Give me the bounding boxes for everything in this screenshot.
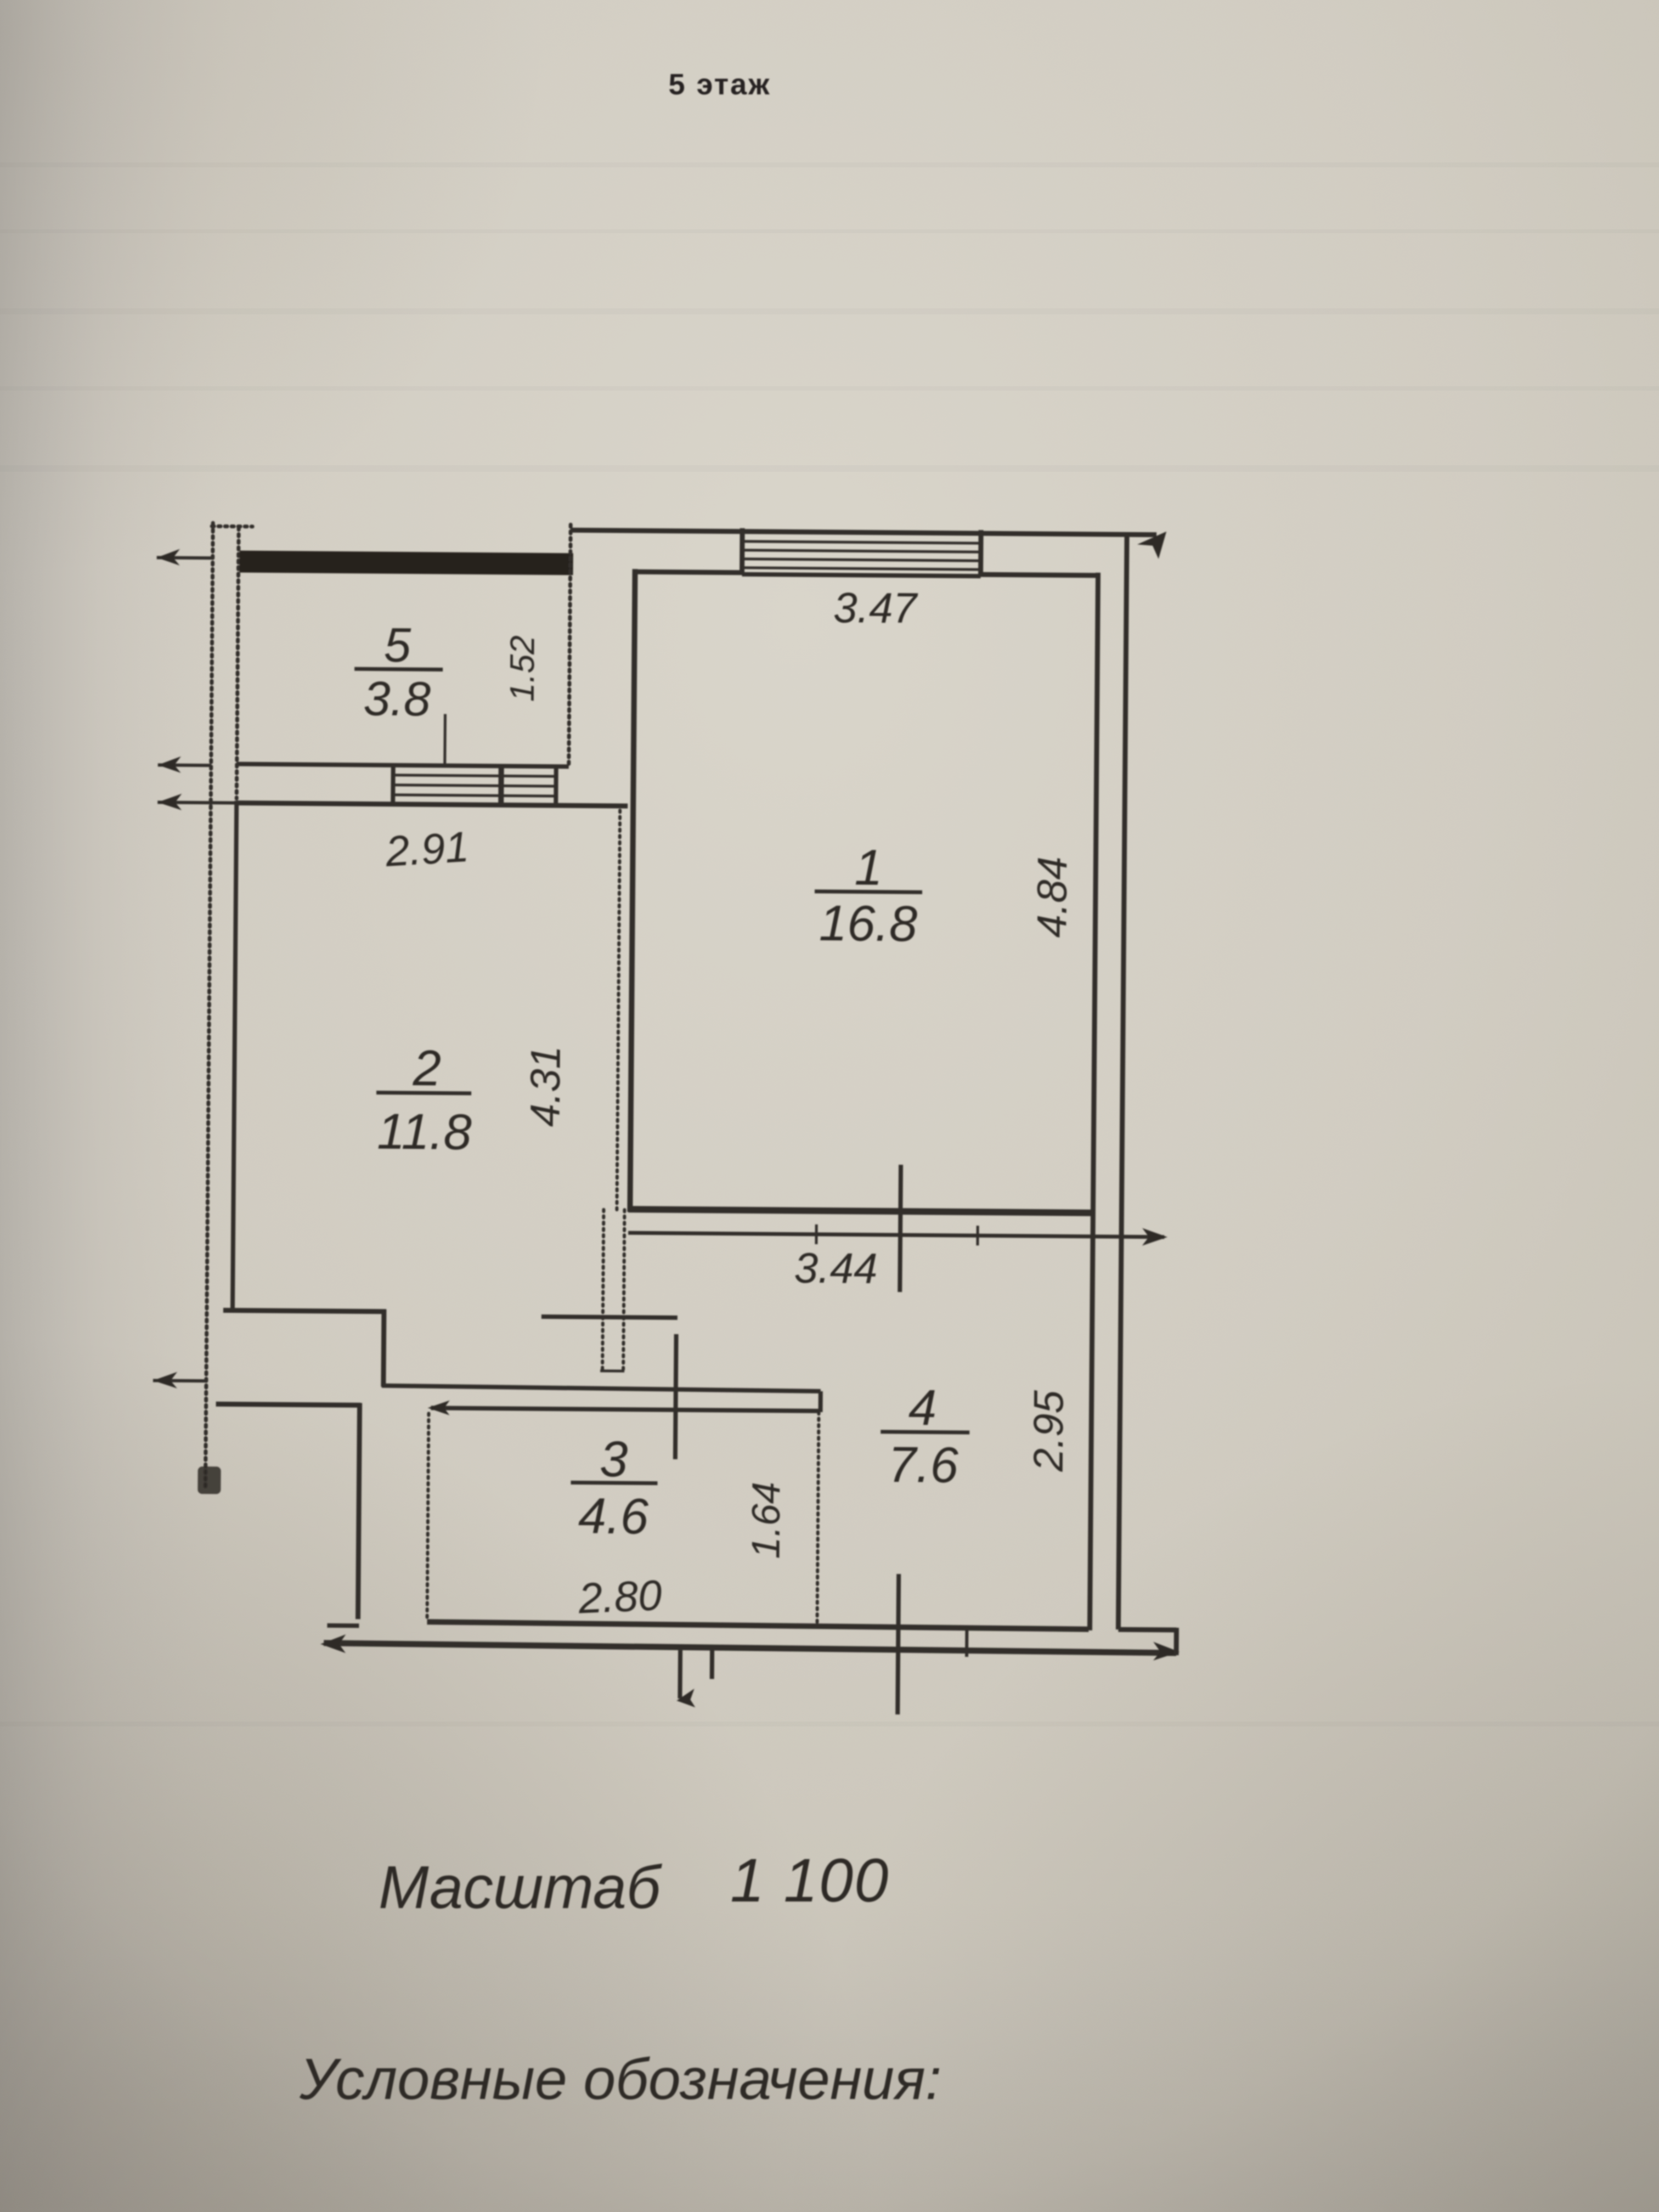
- svg-text:1: 1: [854, 839, 883, 895]
- svg-text:2: 2: [412, 1040, 441, 1096]
- svg-text:4.84: 4.84: [1029, 856, 1076, 938]
- svg-text:3.47: 3.47: [833, 583, 918, 632]
- svg-text:1 100: 1 100: [730, 1846, 889, 1915]
- svg-text:1.52: 1.52: [504, 635, 542, 702]
- svg-text:Условные обозначения:: Условные обозначения:: [299, 2047, 941, 2112]
- svg-text:4.31: 4.31: [522, 1046, 569, 1127]
- svg-text:11.8: 11.8: [377, 1104, 472, 1160]
- svg-text:1.64: 1.64: [744, 1482, 788, 1559]
- svg-text:2.95: 2.95: [1025, 1390, 1073, 1472]
- svg-text:4: 4: [909, 1380, 937, 1436]
- svg-text:7.6: 7.6: [888, 1437, 959, 1493]
- svg-text:3.44: 3.44: [794, 1244, 877, 1293]
- svg-text:2.91: 2.91: [383, 822, 470, 876]
- svg-text:4.6: 4.6: [578, 1488, 650, 1544]
- svg-text:5: 5: [384, 618, 412, 672]
- svg-text:16.8: 16.8: [819, 895, 918, 952]
- svg-text:3.8: 3.8: [363, 671, 431, 726]
- svg-text:5 этаж: 5 этаж: [669, 68, 771, 101]
- svg-text:3: 3: [600, 1431, 628, 1487]
- svg-text:2.80: 2.80: [577, 1571, 663, 1623]
- svg-text:Масштаб: Масштаб: [379, 1854, 663, 1921]
